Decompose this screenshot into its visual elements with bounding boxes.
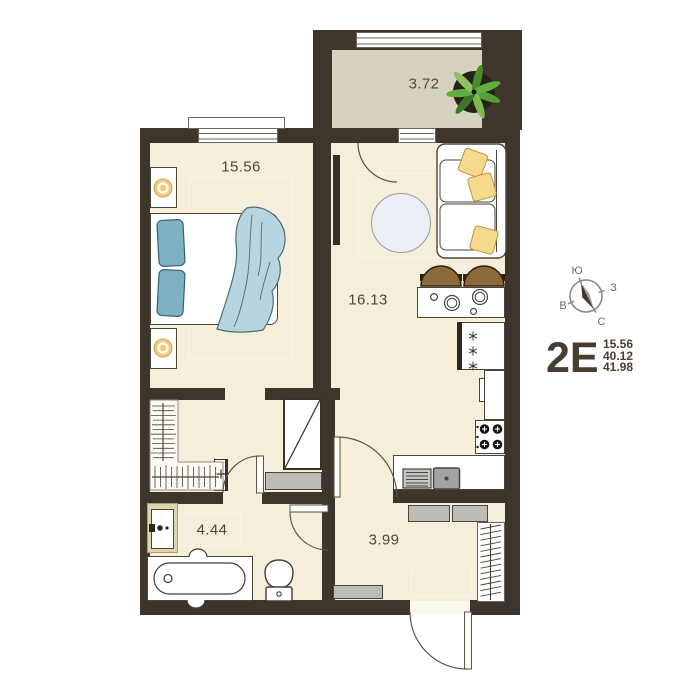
- stat-total: 41.98: [603, 362, 633, 374]
- fridge-door: [457, 322, 462, 370]
- fridge: [457, 322, 505, 370]
- wall-segment: [140, 128, 520, 143]
- entry-sill: [410, 601, 470, 614]
- round-rug: [371, 193, 431, 253]
- hallway-area-label: 3.99: [369, 532, 400, 549]
- wall-segment: [482, 30, 522, 130]
- balcony-window: [356, 32, 482, 48]
- tv: [333, 155, 340, 245]
- compass-label-north: С: [598, 316, 606, 328]
- plan-stats: 15.56 40.12 41.98: [603, 339, 633, 374]
- bathroom-area-label: 4.44: [197, 522, 228, 539]
- kitchen-cabinet: [484, 370, 505, 420]
- nightstand: [150, 167, 177, 208]
- balcony-floor: [332, 45, 482, 130]
- nightstand: [150, 328, 177, 369]
- bed: [150, 213, 278, 325]
- cabinet: [408, 505, 450, 522]
- door-mat: [410, 567, 472, 597]
- plan-code: 2E: [546, 337, 599, 380]
- cabinet-handle: [479, 378, 485, 402]
- wall-segment: [140, 388, 225, 400]
- wall-segment: [140, 600, 410, 615]
- compass-label-south: Ю: [571, 265, 582, 277]
- floorplan-canvas: 15.56 16.13 3.72 4.44 3.99 Ю З В С 2E 15…: [0, 0, 700, 700]
- bedroom-window: [198, 128, 278, 143]
- bathroom-sink: [151, 509, 174, 549]
- compass-label-east: В: [559, 300, 566, 312]
- coat-rack: [477, 522, 505, 602]
- cabinet: [265, 472, 322, 490]
- compass-rose: [568, 278, 605, 313]
- dining-table: [417, 287, 505, 318]
- wall-segment: [393, 490, 520, 503]
- kitchen-counter: [393, 455, 505, 490]
- bedroom-area-label: 15.56: [221, 159, 261, 176]
- cabinet: [333, 585, 383, 599]
- wall-segment: [470, 600, 520, 615]
- stove: [475, 420, 505, 454]
- wall-segment: [313, 143, 331, 388]
- living-area-label: 16.13: [348, 292, 388, 309]
- wall-segment: [262, 492, 325, 504]
- wall-segment: [322, 400, 335, 615]
- bathtub: [147, 556, 253, 601]
- balcony-area-label: 3.72: [409, 76, 440, 93]
- balcony-door-sill: [398, 128, 436, 143]
- wardrobe: [283, 398, 322, 470]
- wall-segment: [505, 128, 520, 615]
- cabinet: [452, 505, 488, 522]
- utility-riser: [214, 459, 228, 491]
- compass-label-west: З: [610, 282, 617, 294]
